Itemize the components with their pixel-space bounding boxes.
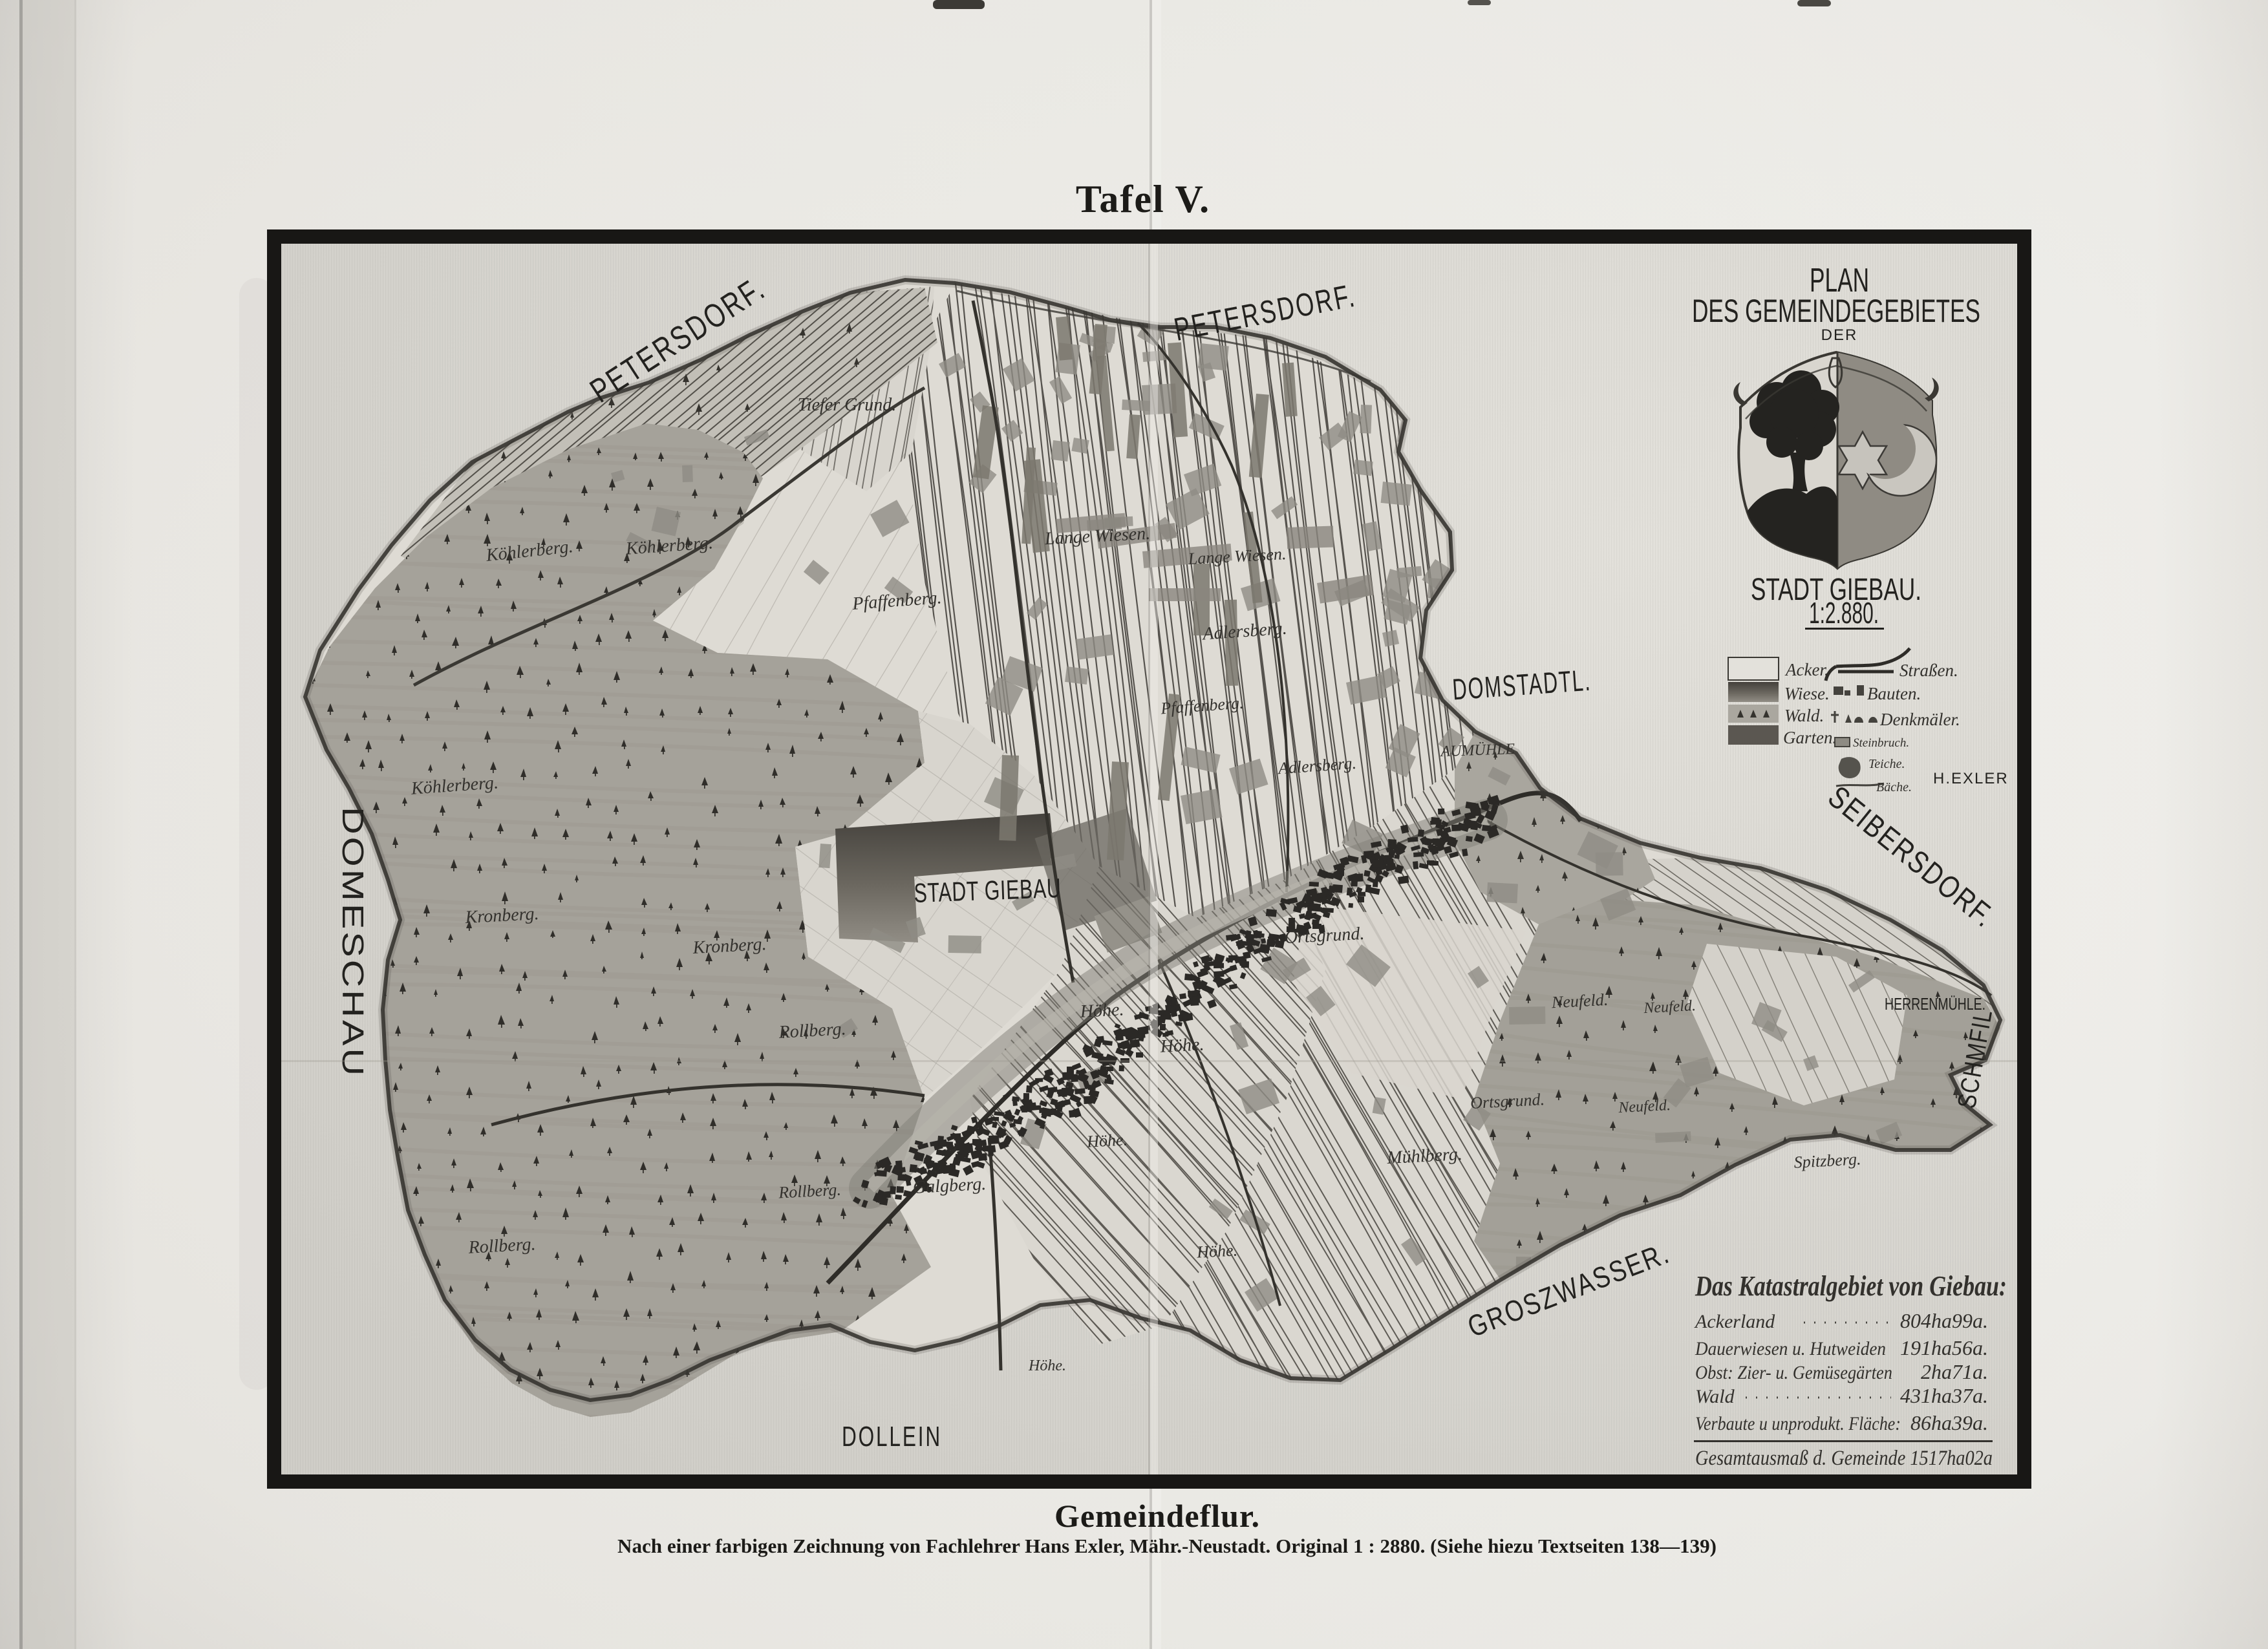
svg-text:Neufeld.: Neufeld. — [1618, 1097, 1671, 1116]
svg-text:Wald.: Wald. — [1784, 706, 1824, 725]
svg-text:Das Katastralgebiet von Giebau: Das Katastralgebiet von Giebau: — [1695, 1270, 2007, 1302]
svg-text:DOMESCHAU: DOMESCHAU — [336, 807, 370, 1078]
svg-text:Wald: Wald — [1695, 1386, 1735, 1407]
svg-text:Höhe.: Höhe. — [1028, 1357, 1066, 1374]
svg-text:86ha39a.: 86ha39a. — [1910, 1411, 1988, 1434]
svg-text:Bäche.: Bäche. — [1876, 780, 1912, 794]
svg-text:Ackerland: Ackerland — [1694, 1311, 1775, 1332]
svg-text:Rollberg.: Rollberg. — [778, 1019, 846, 1042]
svg-text:Neufeld.: Neufeld. — [1643, 997, 1696, 1017]
svg-text:Höhe.: Höhe. — [1159, 1034, 1204, 1057]
svg-text:Nach einer farbigen Zeichnung: Nach einer farbigen Zeichnung von Fachle… — [617, 1535, 1717, 1557]
svg-text:431ha37a.: 431ha37a. — [1900, 1384, 1988, 1407]
svg-text:Tiefer Grund.: Tiefer Grund. — [798, 395, 896, 415]
svg-text:Gesamtausmaß d. Gemeinde 1517h: Gesamtausmaß d. Gemeinde 1517ha02a — [1695, 1447, 1993, 1470]
svg-text:Tafel V.: Tafel V. — [1076, 178, 1210, 220]
svg-text:Gemeindeflur.: Gemeindeflur. — [1054, 1498, 1260, 1534]
svg-text:191ha56a.: 191ha56a. — [1900, 1336, 1988, 1359]
svg-text:Ortsgrund.: Ortsgrund. — [1470, 1090, 1545, 1112]
svg-text:Wiese.: Wiese. — [1784, 684, 1830, 703]
svg-text:Spitzberg.: Spitzberg. — [1793, 1149, 1861, 1171]
svg-text:Kronberg.: Kronberg. — [692, 934, 767, 958]
svg-text:Rollberg.: Rollberg. — [778, 1180, 842, 1202]
svg-text:1:2.880.: 1:2.880. — [1809, 596, 1879, 630]
svg-text:Neufeld.: Neufeld. — [1550, 990, 1609, 1012]
svg-text:AUMÜHLE: AUMÜHLE — [1439, 741, 1515, 760]
svg-text:Bauten.: Bauten. — [1867, 684, 1921, 703]
svg-text:DER: DER — [1821, 326, 1858, 344]
svg-text:H.EXLER: H.EXLER — [1933, 770, 2009, 787]
svg-text:Höhe.: Höhe. — [1086, 1130, 1128, 1151]
svg-text:HERRENMÜHLE.: HERRENMÜHLE. — [1885, 994, 1985, 1014]
svg-text:Rollberg.: Rollberg. — [467, 1234, 536, 1257]
svg-text:Obst: Zier- u. Gemüsegärten: Obst: Zier- u. Gemüsegärten — [1695, 1362, 1892, 1383]
svg-text:Ortsgrund.: Ortsgrund. — [1284, 924, 1365, 948]
svg-text:Denkmäler.: Denkmäler. — [1879, 710, 1960, 729]
svg-text:804ha99a.: 804ha99a. — [1900, 1309, 1988, 1332]
svg-text:Verbaute u unprodukt. Fläche:: Verbaute u unprodukt. Fläche: — [1695, 1413, 1901, 1434]
svg-text:STADT GIEBAU: STADT GIEBAU — [914, 873, 1062, 908]
svg-text:Steinbruch.: Steinbruch. — [1853, 736, 1909, 750]
svg-text:2ha71a.: 2ha71a. — [1921, 1360, 1988, 1383]
svg-text:DOLLEIN: DOLLEIN — [842, 1421, 942, 1452]
svg-text:Garten.: Garten. — [1783, 728, 1837, 747]
svg-text:Höhe.: Höhe. — [1195, 1240, 1237, 1261]
svg-text:Straßen.: Straßen. — [1899, 661, 1958, 680]
svg-text:Mühlberg.: Mühlberg. — [1386, 1144, 1463, 1168]
svg-text:Höhe.: Höhe. — [1079, 999, 1124, 1022]
svg-text:Teiche.: Teiche. — [1868, 757, 1905, 771]
svg-text:Acker.: Acker. — [1784, 660, 1829, 679]
svg-text:Dauerwiesen u. Hutweiden: Dauerwiesen u. Hutweiden — [1695, 1338, 1886, 1359]
svg-text:DES GEMEINDEGEBIETES: DES GEMEINDEGEBIETES — [1692, 293, 1980, 329]
svg-text:Galgberg.: Galgberg. — [912, 1174, 987, 1198]
svg-text:Kronberg.: Kronberg. — [464, 904, 539, 928]
